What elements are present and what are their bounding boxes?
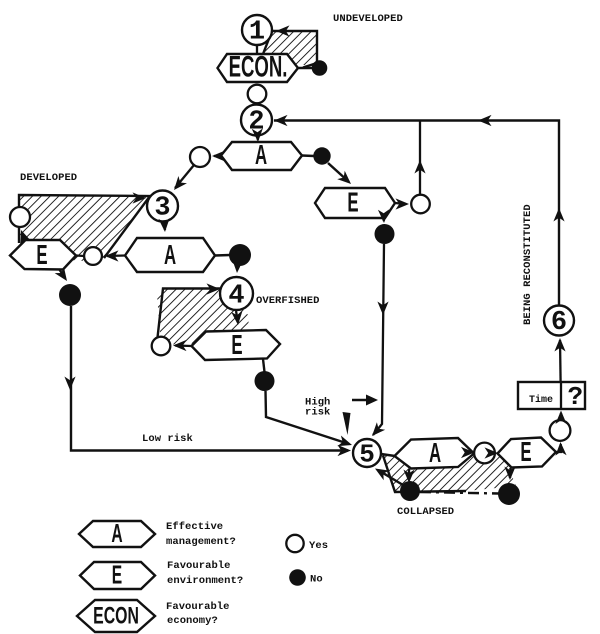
svg-text:ECON: ECON — [93, 603, 139, 629]
svg-text:Favourable: Favourable — [166, 601, 230, 613]
svg-text:E: E — [112, 560, 122, 589]
svg-text:COLLAPSED: COLLAPSED — [397, 506, 454, 518]
svg-text:management?: management? — [166, 536, 236, 548]
svg-text:risk: risk — [305, 407, 330, 419]
svg-text:Effective: Effective — [166, 521, 223, 533]
svg-text:DEVELOPED: DEVELOPED — [20, 172, 77, 184]
svg-text:A: A — [255, 139, 267, 171]
svg-text:Time: Time — [529, 394, 553, 406]
svg-text:A: A — [164, 239, 176, 271]
svg-text:A: A — [111, 519, 122, 548]
svg-text:5: 5 — [359, 440, 375, 470]
svg-text:Favourable: Favourable — [167, 560, 231, 572]
svg-text:No: No — [310, 574, 323, 586]
svg-text:E: E — [520, 436, 531, 468]
svg-text:environment?: environment? — [167, 575, 243, 587]
svg-text:economy?: economy? — [167, 615, 218, 627]
svg-text:3: 3 — [154, 194, 170, 224]
svg-text:A: A — [429, 437, 441, 469]
svg-text:E: E — [36, 239, 47, 271]
svg-text:E: E — [347, 186, 358, 218]
svg-text:1: 1 — [249, 18, 265, 48]
svg-text:Yes: Yes — [309, 540, 328, 552]
svg-text:4: 4 — [228, 282, 244, 312]
svg-text:Low risk: Low risk — [142, 433, 193, 445]
svg-text:6: 6 — [551, 308, 567, 338]
svg-text:?: ? — [568, 382, 584, 412]
svg-text:ECON.: ECON. — [229, 50, 288, 84]
svg-text:BEING RECONSTITUTED: BEING RECONSTITUTED — [522, 204, 534, 325]
svg-text:E: E — [231, 329, 242, 361]
svg-text:UNDEVELOPED: UNDEVELOPED — [333, 13, 403, 25]
svg-text:OVERFISHED: OVERFISHED — [256, 295, 320, 307]
